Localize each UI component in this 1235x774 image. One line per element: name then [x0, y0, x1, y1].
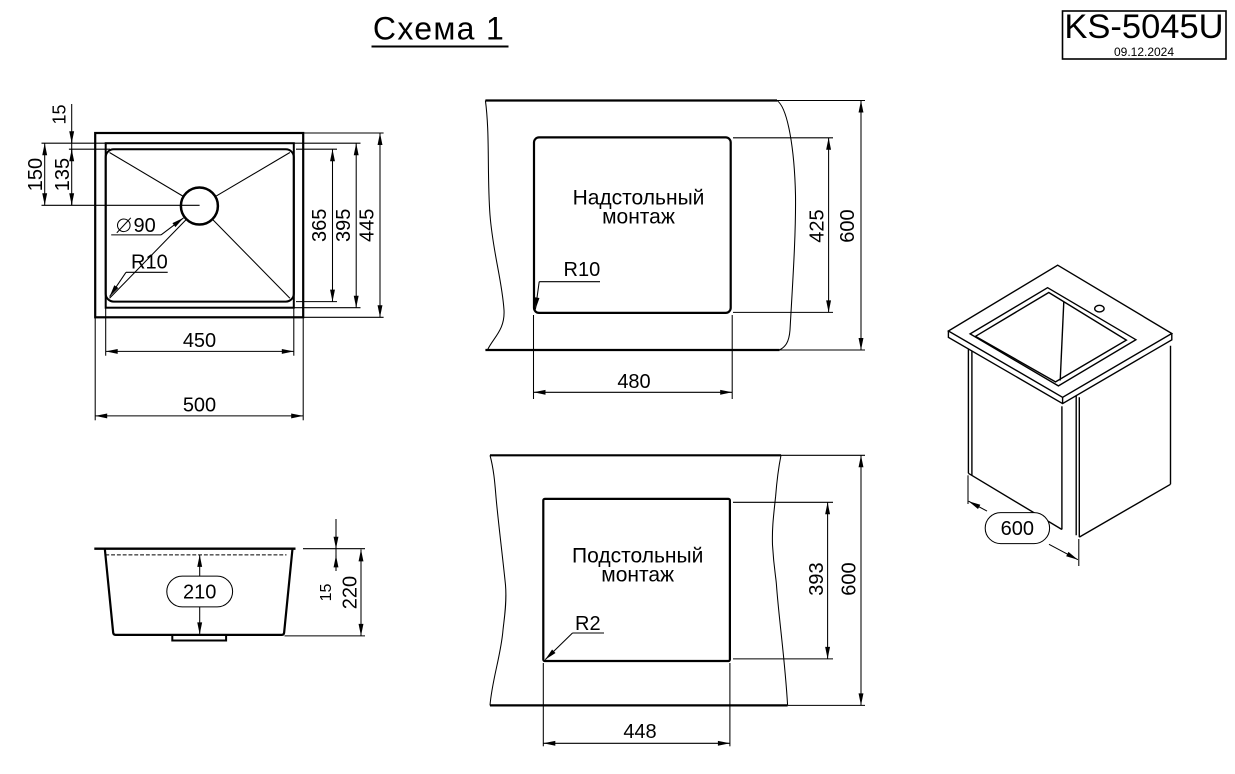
- svg-text:600: 600: [1001, 518, 1034, 540]
- svg-text:монтаж: монтаж: [601, 564, 674, 587]
- svg-text:150: 150: [25, 158, 47, 191]
- svg-text:09.12.2024: 09.12.2024: [1114, 45, 1174, 59]
- svg-text:135: 135: [52, 158, 74, 191]
- svg-text:448: 448: [623, 721, 656, 743]
- svg-text:600: 600: [839, 562, 861, 595]
- svg-text:425: 425: [807, 209, 829, 242]
- svg-text:R2: R2: [575, 613, 601, 635]
- svg-text:15: 15: [318, 584, 335, 602]
- svg-text:KS-5045U: KS-5045U: [1064, 8, 1223, 46]
- svg-text:15: 15: [50, 104, 70, 124]
- svg-text:445: 445: [357, 209, 379, 242]
- svg-text:500: 500: [183, 394, 216, 416]
- svg-text:395: 395: [333, 209, 355, 242]
- svg-text:220: 220: [340, 576, 362, 609]
- svg-text:600: 600: [837, 209, 859, 242]
- svg-text:210: 210: [183, 581, 216, 603]
- svg-text:монтаж: монтаж: [602, 206, 675, 229]
- svg-text:365: 365: [309, 209, 331, 242]
- svg-text:393: 393: [806, 562, 828, 595]
- svg-text:Схема 1: Схема 1: [373, 11, 505, 47]
- svg-text:450: 450: [183, 330, 216, 352]
- svg-text:R10: R10: [131, 252, 168, 274]
- svg-text:R10: R10: [564, 259, 601, 281]
- svg-text:480: 480: [617, 371, 650, 393]
- svg-text:90: 90: [134, 215, 156, 237]
